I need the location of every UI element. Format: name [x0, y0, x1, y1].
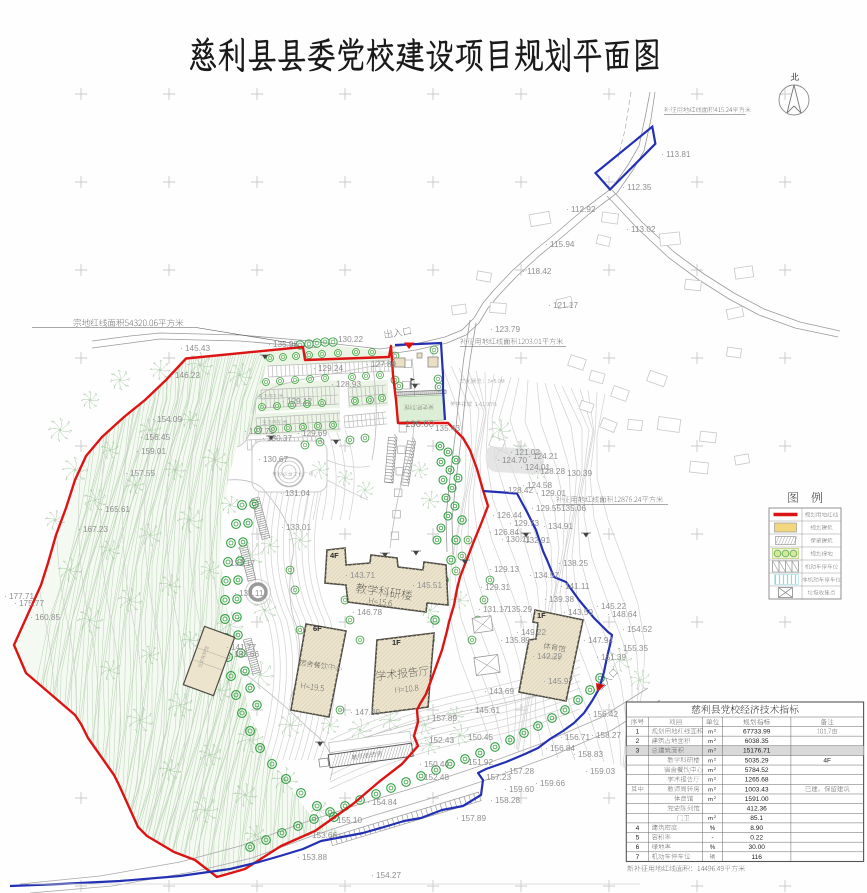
svg-text:· 134.57: · 134.57 [529, 571, 559, 580]
svg-text:· 132.17: · 132.17 [225, 559, 255, 568]
svg-text:m: m [708, 729, 713, 735]
svg-text:· 160.85: · 160.85 [30, 613, 60, 622]
svg-text:m: m [708, 787, 713, 793]
svg-text:1591.00: 1591.00 [745, 796, 769, 803]
svg-text:%: % [710, 844, 716, 851]
svg-text:· 121.17: · 121.17 [548, 301, 578, 310]
svg-text:· 128.42: · 128.42 [503, 486, 533, 495]
svg-text:· 115.94: · 115.94 [545, 240, 575, 249]
svg-text:· 152.48: · 152.48 [419, 773, 449, 782]
svg-text:4F: 4F [330, 551, 339, 560]
svg-text:30.00: 30.00 [748, 844, 765, 851]
svg-text:· 156.42: · 156.42 [588, 710, 618, 719]
svg-text:· 155.10: · 155.10 [332, 816, 362, 825]
svg-text:· 159.66: · 159.66 [535, 779, 565, 788]
svg-text:-: - [712, 834, 714, 841]
svg-text:136.00: 136.00 [405, 419, 434, 430]
svg-text:1F: 1F [392, 638, 401, 647]
svg-text:· 123.79: · 123.79 [490, 325, 520, 334]
svg-text:· 135.98: · 135.98 [268, 340, 298, 349]
svg-text:· 154.09: · 154.09 [152, 415, 182, 424]
svg-text:· 129.73: · 129.73 [509, 519, 539, 528]
svg-text:0.22: 0.22 [750, 834, 763, 841]
svg-text:116: 116 [751, 854, 762, 861]
svg-text:· 113.81: · 113.81 [661, 150, 691, 159]
svg-text:· 158.83: · 158.83 [573, 750, 603, 759]
svg-text:· 145.43: · 145.43 [180, 344, 210, 353]
svg-text:· 156.45: · 156.45 [140, 433, 170, 442]
svg-text:· 138.25: · 138.25 [558, 559, 588, 568]
svg-text:· 153.66: · 153.66 [307, 831, 337, 840]
svg-text:· 165.61: · 165.61 [100, 505, 130, 514]
svg-text:1265.68: 1265.68 [745, 777, 769, 784]
svg-text:· 153.88: · 153.88 [297, 853, 327, 862]
svg-text:· 132.11: · 132.11 [234, 589, 264, 598]
svg-text:· 158.27: · 158.27 [591, 731, 621, 740]
svg-text:4: 4 [636, 825, 640, 832]
svg-text:· 141.77: · 141.77 [226, 643, 256, 652]
svg-text:412.36: 412.36 [747, 806, 768, 813]
svg-text:5784.52: 5784.52 [745, 767, 769, 774]
svg-text:6F: 6F [313, 624, 322, 633]
svg-text:m: m [708, 816, 713, 822]
svg-text:· 135.29: · 135.29 [502, 605, 532, 614]
svg-text:· 154.84: · 154.84 [367, 798, 397, 807]
svg-text:15176.71: 15176.71 [743, 748, 771, 755]
svg-text:· 142.29: · 142.29 [532, 652, 562, 661]
svg-text:· 129.69: · 129.69 [297, 429, 327, 438]
svg-text:· 143.71: · 143.71 [345, 571, 375, 580]
svg-text:· 157.23: · 157.23 [481, 773, 511, 782]
svg-text:6: 6 [636, 844, 640, 851]
svg-text:4F: 4F [823, 757, 831, 764]
svg-text:· 127.89: · 127.89 [366, 360, 396, 369]
svg-text:1003.43: 1003.43 [745, 786, 769, 793]
svg-text:· 130.39: · 130.39 [562, 469, 592, 478]
svg-text:· 112.35: · 112.35 [622, 183, 652, 192]
svg-text:· 139.38: · 139.38 [544, 595, 574, 604]
svg-text:· 177.71: · 177.71 [4, 592, 34, 601]
svg-text:· 143.59: · 143.59 [563, 608, 593, 617]
svg-text:· 159.60: · 159.60 [504, 785, 534, 794]
svg-text:m: m [708, 797, 713, 803]
svg-text:· 135.43: · 135.43 [430, 424, 460, 433]
svg-text:1F: 1F [537, 611, 546, 620]
svg-text:· 157.55: · 157.55 [125, 469, 155, 478]
svg-text:· 130.22: · 130.22 [333, 335, 363, 344]
svg-text:· 145.97: · 145.97 [543, 677, 573, 686]
svg-text:· 124.21: · 124.21 [528, 452, 558, 461]
svg-text:· 132.91: · 132.91 [520, 536, 550, 545]
svg-text:m: m [708, 758, 713, 764]
svg-text:· 159.03: · 159.03 [585, 767, 615, 776]
svg-text:m: m [708, 749, 713, 755]
svg-text:· 159.01: · 159.01 [136, 447, 166, 456]
svg-text:· 151.39: · 151.39 [596, 653, 626, 662]
svg-text:· 156.71: · 156.71 [560, 733, 590, 742]
svg-text:· 128.93: · 128.93 [331, 380, 361, 389]
svg-text:· 129.24: · 129.24 [313, 364, 343, 373]
svg-text:· 129.31: · 129.31 [480, 583, 510, 592]
svg-text:· 143.69: · 143.69 [484, 687, 514, 696]
svg-text:· 147.94: · 147.94 [583, 636, 613, 645]
svg-text:· 147.89: · 147.89 [350, 708, 380, 717]
svg-text:85.1: 85.1 [750, 815, 763, 822]
svg-text:· 112.92: · 112.92 [566, 205, 596, 214]
svg-text:· 157.89: · 157.89 [427, 714, 457, 723]
svg-text:· 150.45: · 150.45 [463, 733, 493, 742]
svg-text:· 152.43: · 152.43 [424, 736, 454, 745]
svg-text:2: 2 [636, 738, 640, 745]
svg-text:7: 7 [636, 854, 640, 861]
svg-text:· 158.28: · 158.28 [490, 796, 520, 805]
svg-text:· 130.37: · 130.37 [262, 434, 292, 443]
svg-text:m: m [708, 739, 713, 745]
svg-text:5035.29: 5035.29 [745, 757, 769, 764]
svg-text:8.90: 8.90 [750, 825, 763, 832]
svg-text:· 129.13: · 129.13 [489, 565, 519, 574]
svg-text:· 157.89: · 157.89 [456, 814, 486, 823]
svg-text:· 145.61: · 145.61 [470, 706, 500, 715]
svg-text:3: 3 [636, 748, 640, 755]
svg-text:· 129.01: · 129.01 [536, 489, 566, 498]
svg-text:m: m [708, 768, 713, 774]
svg-text:· 130.67: · 130.67 [258, 455, 288, 464]
svg-text:· 145.51: · 145.51 [412, 581, 442, 590]
svg-text:· 146.78: · 146.78 [352, 608, 382, 617]
svg-text:· 146.22: · 146.22 [170, 371, 200, 380]
svg-text:6038.35: 6038.35 [745, 738, 769, 745]
svg-text:67733.99: 67733.99 [743, 728, 771, 735]
svg-text:· 113.02: · 113.02 [626, 225, 656, 234]
svg-text:· 155.35: · 155.35 [618, 644, 648, 653]
svg-text:· 151.92: · 151.92 [463, 758, 493, 767]
svg-text:· 154.27: · 154.27 [371, 871, 401, 880]
svg-text:· 118.42: · 118.42 [522, 267, 552, 276]
svg-text:· 135.89: · 135.89 [500, 636, 530, 645]
svg-text:· 167.23: · 167.23 [78, 525, 108, 534]
svg-text:%: % [710, 825, 716, 832]
svg-text:5: 5 [636, 834, 640, 841]
svg-text:· 129.12: · 129.12 [282, 397, 312, 406]
svg-text:· 148.64: · 148.64 [607, 610, 637, 619]
svg-text:· 141.11: · 141.11 [560, 582, 590, 591]
svg-text:m: m [708, 778, 713, 784]
svg-text:· 133.01: · 133.01 [281, 523, 311, 532]
svg-text:· 128.28: · 128.28 [535, 467, 565, 476]
svg-text:· 156.84: · 156.84 [545, 744, 575, 753]
svg-text:1: 1 [636, 728, 640, 735]
svg-text:· 134.91: · 134.91 [543, 522, 573, 531]
svg-text:· 150.44: · 150.44 [419, 760, 449, 769]
svg-text:· 135.06: · 135.06 [556, 504, 586, 513]
svg-text:· 154.52: · 154.52 [622, 625, 652, 634]
svg-text:· 131.04: · 131.04 [280, 489, 310, 498]
